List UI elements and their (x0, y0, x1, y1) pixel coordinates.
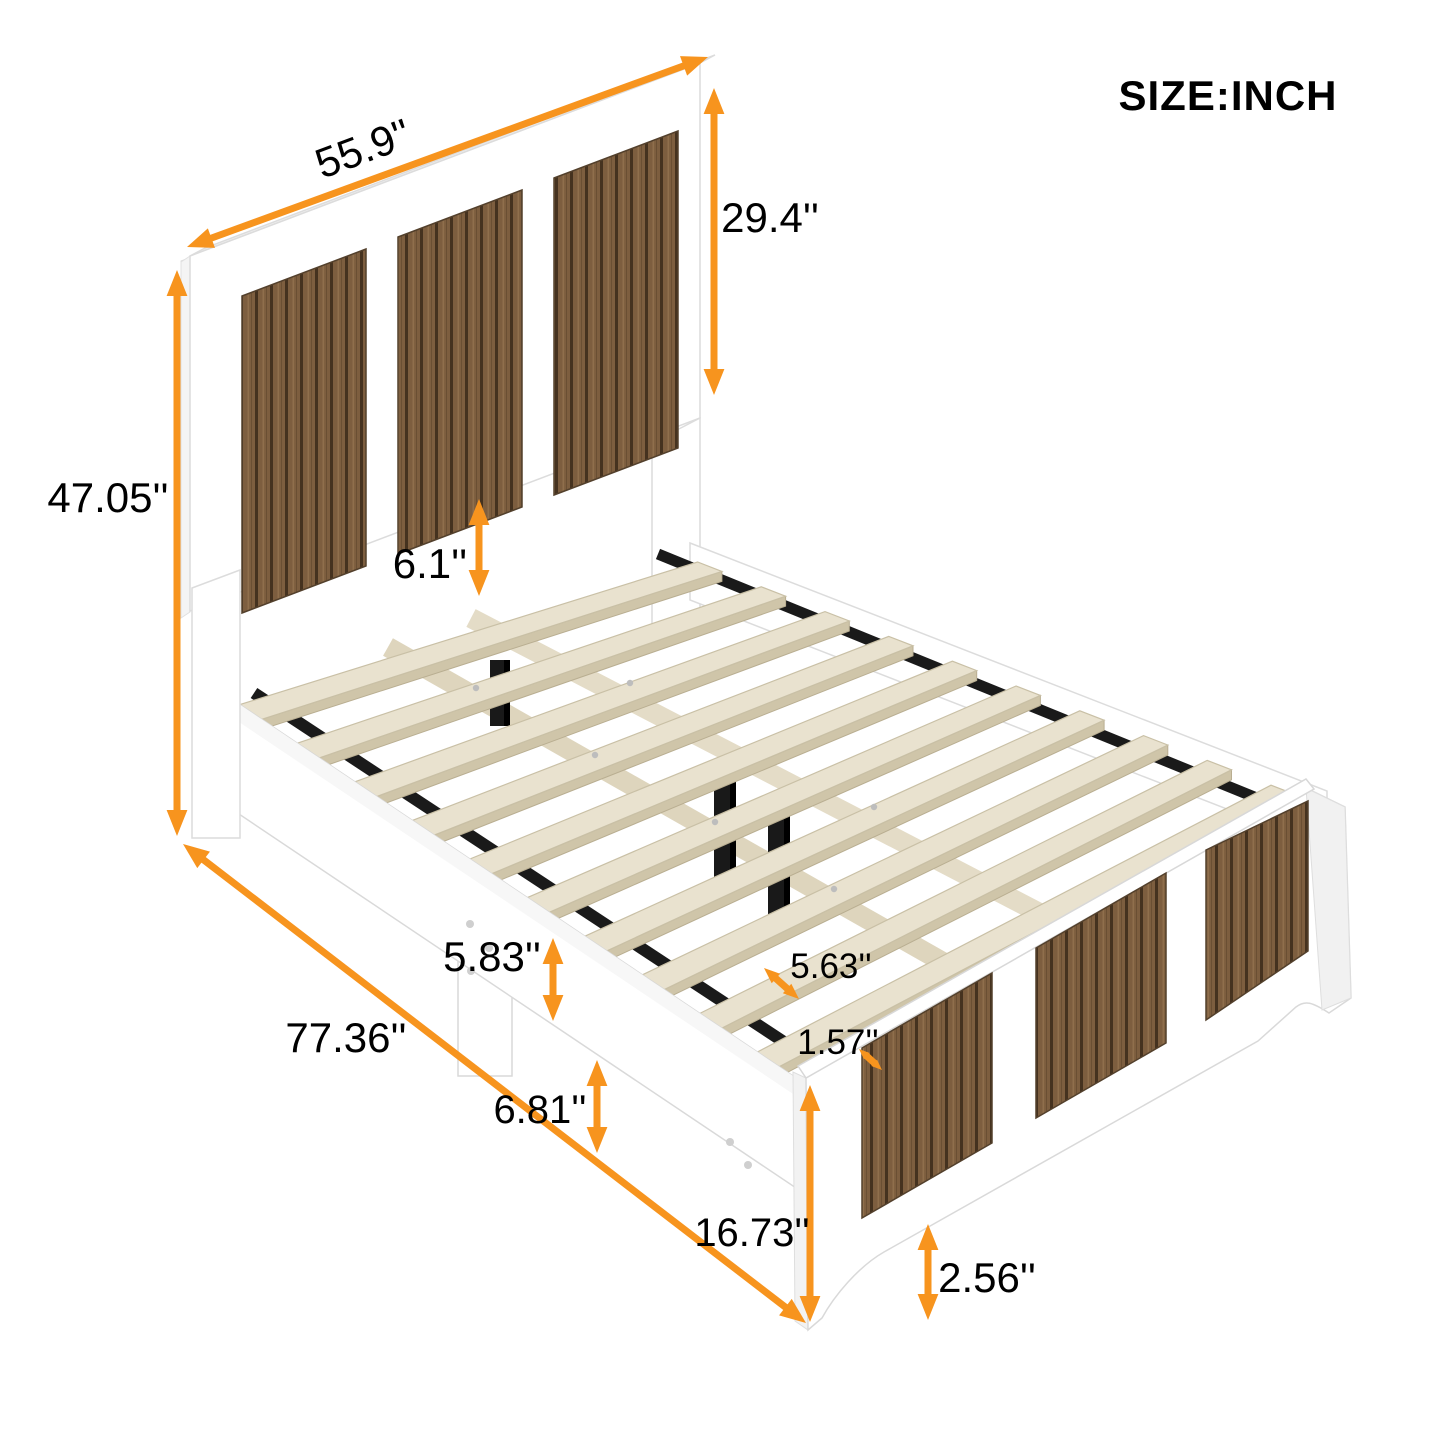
dim-under-bed-clearance-label: 6.81'' (493, 1088, 586, 1132)
dim-footboard-height-label: 16.73'' (694, 1211, 809, 1255)
dim-headboard-upper-height-label: 29.4'' (721, 194, 819, 241)
dim-headboard-total-height-label: 47.05'' (47, 474, 168, 521)
dim-side-rail-height-label: 5.83'' (443, 933, 541, 980)
dim-slat-gap-label: 5.63'' (790, 947, 871, 986)
unit-label: SIZE:INCH (1119, 72, 1338, 119)
headboard-panel-2 (398, 190, 522, 554)
dim-foot-leg-height-label: 2.56'' (938, 1254, 1036, 1301)
headboard-panel-3 (554, 131, 678, 495)
headboard-left-leg (192, 570, 240, 838)
headboard-panel-1 (242, 249, 366, 613)
dim-bed-length-label: 77.36'' (285, 1014, 406, 1061)
dim-headboard-to-slat-gap-label: 6.1'' (393, 540, 467, 587)
dim-slat-width-label: 1.57'' (797, 1023, 878, 1062)
bed-dimension-diagram: SIZE:INCH 55.9'' 29.4'' 47.05'' 6.1'' 5.… (0, 0, 1445, 1445)
bed-illustration: SIZE:INCH 55.9'' 29.4'' 47.05'' 6.1'' 5.… (0, 0, 1445, 1445)
